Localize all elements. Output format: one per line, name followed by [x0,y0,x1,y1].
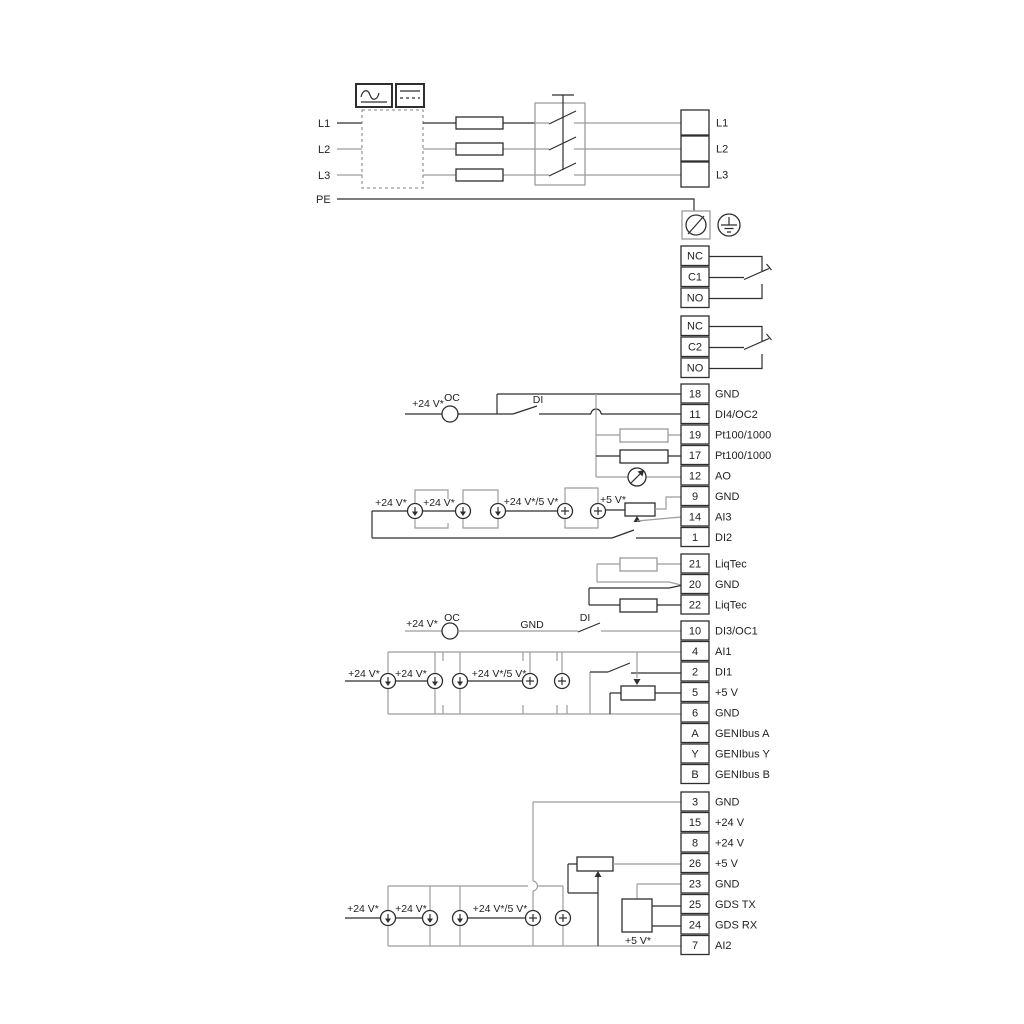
wiring-diagram: +24 V* OC DI +24 V* +24 V* +24 V*/5 V* +… [0,0,1024,1024]
di-switch-blade [578,623,600,632]
pt100-resistor [620,429,668,442]
power-input-label: L1 [318,118,330,130]
terminal-number: 18 [689,389,701,401]
terminal-label: LiqTec [715,600,747,612]
fuses [423,117,535,181]
wire-to-11 [539,409,681,414]
wire-pe [337,199,694,211]
terminal-label: +24 V [715,838,745,850]
open-collector-icon [442,623,458,639]
terminal-number: 17 [689,450,701,462]
relay1-contact-icon [744,264,772,280]
wire-to-9 [655,497,681,509]
relay-terminal-label: NC [687,251,703,263]
liqtec-resistor [620,558,657,571]
terminal-label: AI3 [715,512,732,524]
current-source-icon [381,911,396,926]
power-output-label: L3 [716,170,728,182]
terminal-label: GENIbus B [715,769,770,781]
terminal-label: GENIbus Y [715,749,770,761]
label-5v: +5 V* [600,494,626,506]
power-input-label: L2 [318,144,330,156]
terminal-number: 10 [689,626,701,638]
open-collector-icon [442,406,458,422]
terminal-label: GND [715,708,740,720]
terminal-number: 26 [689,858,701,870]
terminal-label: Pt100/1000 [715,450,771,462]
ai1-di1-sensor-options [345,652,681,714]
di4-oc2-circuit [405,394,681,486]
relay1-wiring [709,257,772,299]
option-brackets [388,652,567,714]
current-source-icon [428,674,443,689]
gds-sensor-box [622,899,652,932]
voltage-source-icon [556,911,571,926]
liqtec-resistor [620,599,657,612]
pe-terminal [682,211,740,239]
current-source-icon [408,504,423,519]
terminal-number: 2 [692,667,698,679]
terminal-number: 9 [692,491,698,503]
label-di: DI [580,612,591,624]
current-source-icon [456,504,471,519]
label-gnd: GND [520,619,544,631]
terminal-label: DI4/OC2 [715,409,758,421]
main-switch [535,95,585,185]
power-output-label: L2 [716,144,728,156]
di2-switch-blade [612,530,634,538]
relay-terminal-label: NO [687,293,704,305]
wire-to-14 [637,517,681,521]
terminal-number: 5 [692,687,698,699]
terminal-label: GDS RX [715,920,758,932]
terminal-number: 3 [692,797,698,809]
terminal-number: 14 [689,512,701,524]
terminal-number: 20 [689,579,701,591]
di-switch-blade [513,406,537,414]
terminal-label: GDS TX [715,899,756,911]
label-di: DI [533,394,544,406]
label-24v: +24 V* [406,618,438,630]
dc-symbol-box [396,84,424,107]
current-source-icon [381,674,396,689]
terminal-label: DI1 [715,667,732,679]
label-24v-5v: +24 V*/5 V* [473,903,528,915]
voltage-source-icon [558,504,573,519]
terminal-label: AI1 [715,646,732,658]
terminal-number: 24 [689,920,701,932]
di1-switch-blade [608,663,630,672]
label-5v: +5 V* [625,935,651,947]
relay-terminal-label: C2 [688,342,702,354]
wire-to-18 [497,394,681,414]
terminal-label: LiqTec [715,559,747,571]
terminal-number: 15 [689,817,701,829]
terminal-label: GND [715,579,740,591]
current-source-icon [453,911,468,926]
terminal-number: 21 [689,559,701,571]
terminal-number: 19 [689,430,701,442]
voltage-source-icon [526,911,541,926]
gnd-drop-with-hop [533,802,538,910]
terminal-label: GENIbus A [715,728,770,740]
ai2-gds-sensor-options [345,802,681,946]
terminal-label: GND [715,797,740,809]
terminal-label: GND [715,491,740,503]
terminal-number: 25 [689,899,701,911]
terminal-number: B [691,769,698,781]
relay-terminal-label: C1 [688,272,702,284]
terminal-number: 4 [692,646,698,658]
terminal-label: AO [715,471,731,483]
terminal-number: 7 [692,940,698,952]
power-terminal-cell [681,110,709,135]
voltage-source-icon [555,674,570,689]
wire-to-23 [637,884,681,899]
terminal-number: Y [691,749,699,761]
fuse-l3 [456,169,503,181]
liqtec-circuit [589,558,681,612]
terminal-number: 6 [692,708,698,720]
power-input-label: L3 [318,170,330,182]
terminal-label: DI2 [715,532,732,544]
terminal-label: +24 V [715,817,745,829]
terminal-number: 1 [692,532,698,544]
label-24v: +24 V* [347,903,379,915]
terminal-label: GND [715,389,740,401]
fuse-l2 [456,143,503,155]
fuse-l1 [456,117,503,129]
filter-box [362,110,423,188]
relay2-wiring [709,327,772,369]
terminal-label: +5 V [715,687,739,699]
power-output-label: L1 [716,118,728,130]
label-24v-5v: +24 V*/5 V* [472,668,527,680]
label-24v: +24 V* [375,497,407,509]
pt100-resistor [620,450,668,463]
label-24v-5v: +24 V*/5 V* [504,496,559,508]
terminal-number: 23 [689,879,701,891]
terminal-label: Pt100/1000 [715,430,771,442]
terminal-number: 8 [692,838,698,850]
label-oc: OC [444,612,460,624]
terminal-number: 11 [689,409,700,421]
current-source-icon [453,674,468,689]
label-24v: +24 V* [348,668,380,680]
label-oc: OC [444,392,460,404]
wires-to-output-block [585,123,681,175]
terminal-label: GND [715,879,740,891]
terminal-number: A [691,728,699,740]
potentiometer [577,857,613,871]
wiper-arrow [634,679,641,685]
power-input-label: PE [316,194,331,206]
terminal-number: 12 [689,471,701,483]
label-24v: +24 V* [412,398,444,410]
potentiometer [625,503,655,516]
relay2-contact-icon [744,334,772,350]
power-section [337,84,740,239]
label-24v: +24 V* [423,497,455,509]
terminal-label: DI3/OC1 [715,626,758,638]
power-terminal-cell [681,162,709,187]
terminal-number: 22 [689,600,701,612]
terminal-label: AI2 [715,940,732,952]
power-terminal-cell [681,136,709,161]
label-24v: +24 V* [395,903,427,915]
label-24v: +24 V* [395,668,427,680]
potentiometer [621,686,655,700]
terminal-label: +5 V [715,858,739,870]
relay-terminal-label: NC [687,321,703,333]
relay-terminal-label: NO [687,363,704,375]
